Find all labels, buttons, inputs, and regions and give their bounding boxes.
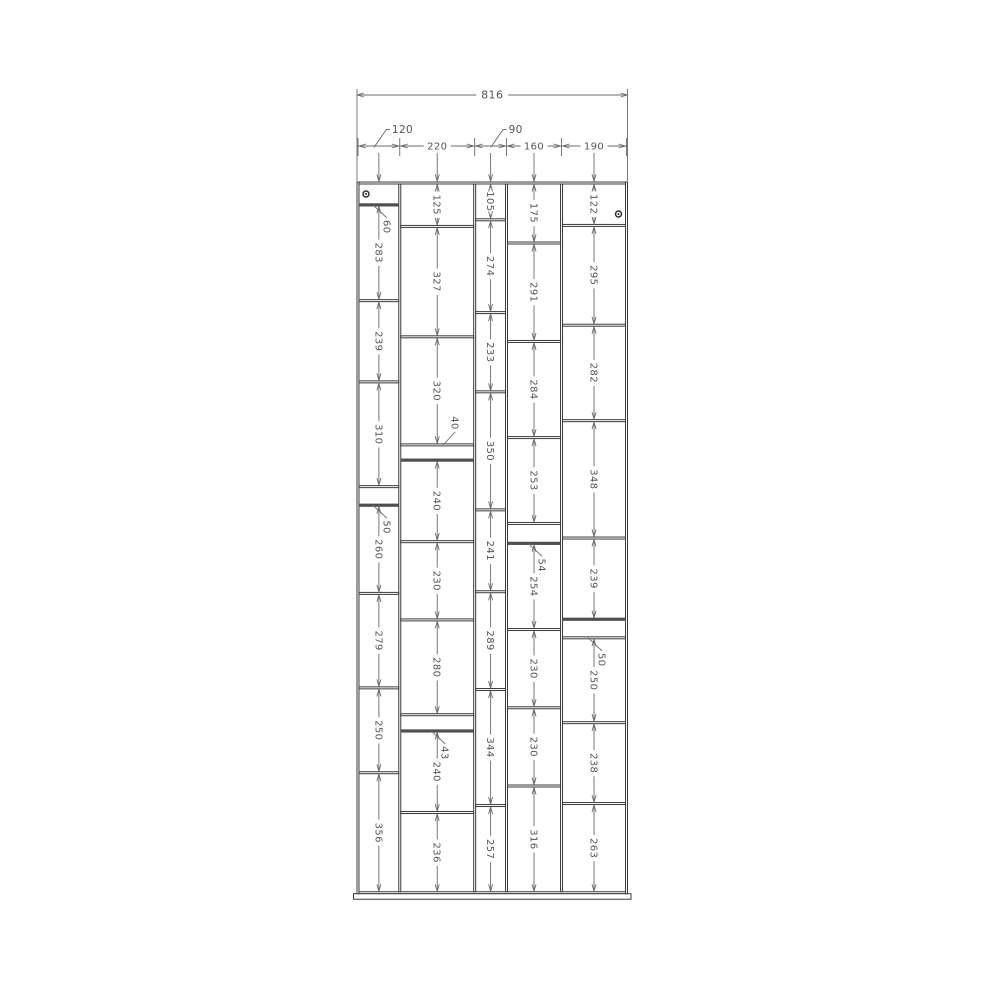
- dimension-label: 289: [484, 630, 495, 650]
- dimension-label-leader: 60: [380, 220, 391, 234]
- shelf: [476, 219, 506, 221]
- base-plate: [354, 894, 632, 900]
- shelf: [508, 522, 561, 524]
- dimension-label: 316: [528, 829, 539, 849]
- shelf: [563, 324, 626, 326]
- dimension-label: 253: [528, 470, 539, 490]
- dimension-label: 274: [484, 256, 495, 276]
- column-width-label: 160: [524, 141, 544, 152]
- dimension-label: 254: [528, 576, 539, 596]
- shelf: [508, 437, 561, 439]
- dimension-label-leader: 40: [449, 416, 460, 430]
- shelf: [508, 340, 561, 342]
- dimension-label-leader: 54: [536, 558, 547, 572]
- shelf: [563, 420, 626, 422]
- dimension-label: 344: [484, 737, 495, 757]
- shelf: [508, 629, 561, 631]
- leader-line: [491, 130, 507, 148]
- shelf: [508, 785, 561, 787]
- dimension-label: 240: [431, 491, 442, 511]
- dimension-label: 320: [431, 381, 442, 401]
- dimension-label: 280: [431, 657, 442, 677]
- top-panel: [357, 182, 628, 184]
- shelf-highlighted: [401, 729, 474, 732]
- dimension-label: 263: [588, 838, 599, 858]
- dimension-label: 241: [484, 541, 495, 561]
- shelf: [359, 772, 399, 774]
- dimension-label: 125: [431, 195, 442, 215]
- dimension-label: 230: [431, 571, 442, 591]
- dimension-label: 279: [372, 630, 383, 650]
- shelf: [359, 486, 399, 488]
- dimension-label: 250: [588, 670, 599, 690]
- vertical-divider-panel: [474, 184, 476, 892]
- dimension-label: 295: [588, 265, 599, 285]
- shelf: [476, 312, 506, 314]
- shelf-highlighted: [359, 504, 399, 507]
- shelf: [401, 812, 474, 814]
- shelf: [476, 591, 506, 593]
- shelf: [563, 637, 626, 639]
- column-width-label: 120: [392, 124, 413, 136]
- dimension-label-leader: 43: [439, 746, 450, 760]
- shelf: [563, 722, 626, 724]
- shelf: [401, 336, 474, 338]
- dimension-label: 257: [484, 839, 495, 859]
- dimension-label: 250: [372, 720, 383, 740]
- shelf: [401, 714, 474, 716]
- dimension-label: 175: [528, 203, 539, 223]
- leader-line: [374, 130, 390, 148]
- dimension-label: 282: [588, 363, 599, 383]
- shelf: [476, 689, 506, 691]
- drawing-page: 8162201601901209060283239310502602792503…: [0, 0, 1000, 1000]
- dimension-label: 327: [431, 271, 442, 291]
- shelf: [401, 225, 474, 227]
- shelf: [401, 541, 474, 543]
- shelf-highlighted: [563, 618, 626, 621]
- dimension-label: 236: [431, 842, 442, 862]
- dimension-label: 230: [528, 737, 539, 757]
- left-side-panel: [357, 182, 359, 894]
- dimension-label: 238: [588, 753, 599, 773]
- screw-icon: [616, 211, 622, 217]
- shelf: [359, 592, 399, 594]
- shelf-highlighted: [401, 459, 474, 462]
- dimension-label: 348: [588, 469, 599, 489]
- dimension-label: 284: [528, 379, 539, 399]
- vertical-divider-panel: [399, 184, 401, 892]
- dimension-label: 350: [484, 441, 495, 461]
- shelf: [563, 224, 626, 226]
- leader-line: [443, 432, 455, 445]
- dimension-label: 239: [372, 331, 383, 351]
- dimension-label-leader: 50: [380, 520, 391, 534]
- overall-width-label: 816: [481, 89, 503, 102]
- shelf: [359, 381, 399, 383]
- dimension-label-leader: 50: [596, 653, 607, 667]
- shelf: [401, 619, 474, 621]
- dimension-label: 122: [588, 194, 599, 214]
- dimension-label: 356: [372, 823, 383, 843]
- screw-icon: [363, 191, 369, 197]
- shelf: [563, 803, 626, 805]
- column-width-label: 190: [584, 141, 604, 152]
- shelf: [359, 300, 399, 302]
- shelf-highlighted: [508, 542, 561, 545]
- dimension-label: 239: [588, 568, 599, 588]
- column-width-label: 90: [509, 124, 523, 136]
- shelf-highlighted: [359, 203, 399, 206]
- shelf: [508, 242, 561, 244]
- dimension-label: 233: [484, 342, 495, 362]
- shelf: [476, 391, 506, 393]
- dimension-label: 240: [431, 762, 442, 782]
- dimension-label: 230: [528, 658, 539, 678]
- shelf: [476, 805, 506, 807]
- dimension-label: 260: [372, 539, 383, 559]
- shelf: [359, 687, 399, 689]
- dimensions: 8162201601901209060283239310502602792503…: [357, 89, 628, 892]
- column-width-label: 220: [427, 141, 447, 152]
- cabinet-dimension-drawing: 8162201601901209060283239310502602792503…: [0, 0, 1000, 1000]
- dimension-label: 283: [372, 243, 383, 263]
- dimension-label: 310: [372, 424, 383, 444]
- dimension-label: 105: [484, 191, 495, 211]
- dimension-label: 291: [528, 282, 539, 302]
- shelf: [476, 509, 506, 511]
- shelf: [401, 444, 474, 446]
- shelf: [508, 707, 561, 709]
- shelf: [563, 537, 626, 539]
